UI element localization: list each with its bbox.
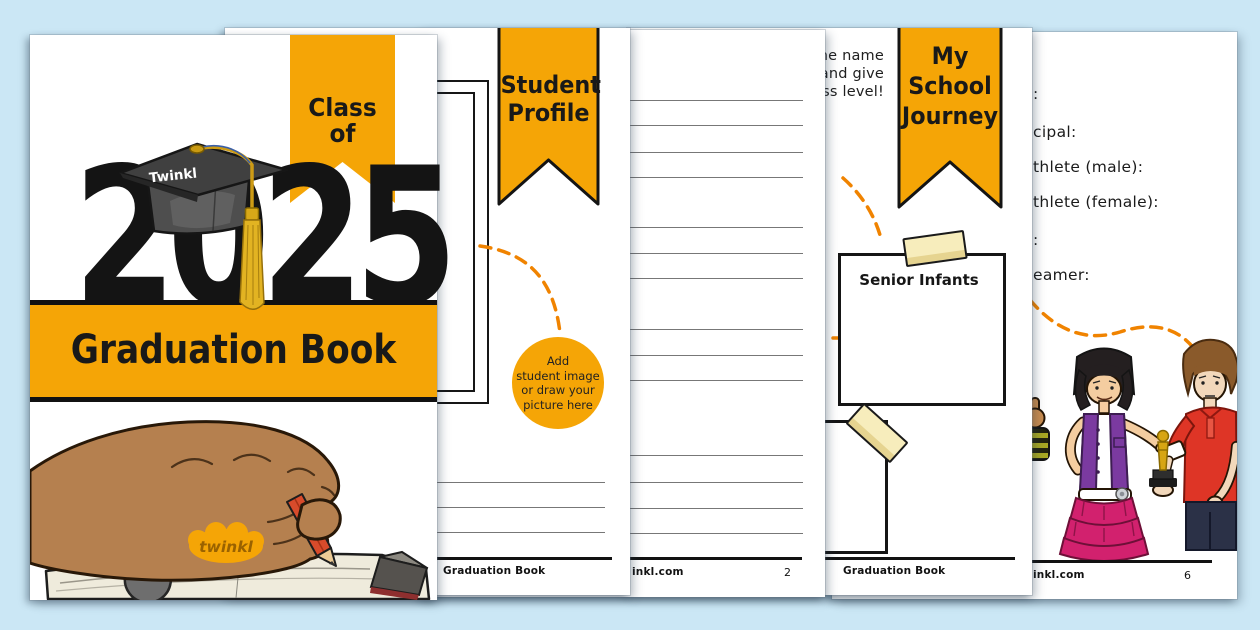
school-journey-ribbon: My School Journey	[897, 28, 1003, 213]
ribbon-text: Journey	[901, 104, 1000, 129]
footer-title: Graduation Book	[843, 565, 945, 577]
ribbon-text: School	[901, 74, 1000, 99]
writing-hand-illustration: twinkl	[30, 35, 437, 600]
footer-rule	[1028, 560, 1212, 563]
footer-site: inkl.com	[1033, 569, 1085, 581]
note-line: Add	[512, 354, 604, 369]
class-level-label: Senior Infants	[838, 271, 1000, 289]
footer-site: inkl.com	[632, 566, 684, 578]
note-line: student image	[512, 369, 604, 384]
ribbon-text: Student	[501, 73, 597, 98]
preview-stage: : cipal: thlete (male): thlete (female):…	[0, 0, 1260, 630]
page-number: 6	[1184, 569, 1191, 582]
ribbon-text: My	[901, 44, 1000, 69]
ribbon-text: Profile	[501, 101, 597, 126]
note-line: picture here	[512, 398, 604, 413]
twinkl-logo-text: twinkl	[199, 538, 253, 556]
student-profile-ribbon: Student Profile	[497, 28, 600, 210]
footer-title: Graduation Book	[443, 565, 545, 577]
page-cover: Class of 2025 Graduation Book Twinkl	[30, 35, 437, 600]
footer-rule	[797, 557, 1015, 560]
page-number: 2	[784, 566, 791, 579]
note-line: or draw your	[512, 383, 604, 398]
add-image-note: Add student image or draw your picture h…	[512, 337, 604, 429]
